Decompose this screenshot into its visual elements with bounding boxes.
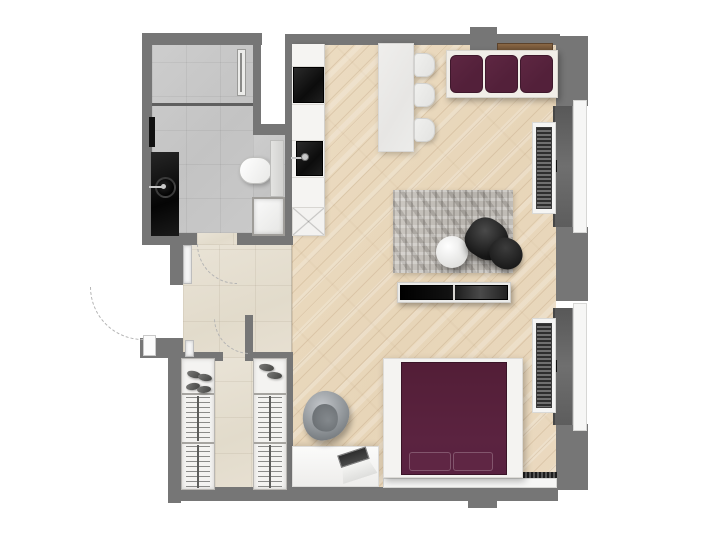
bathroom-mirror [149, 117, 155, 147]
wardrobe-shelf-divider [254, 393, 286, 395]
bottom-ledge [383, 478, 557, 488]
sofa-cushion-2 [485, 55, 518, 93]
tv-sideboard-divider [453, 285, 455, 300]
radiator-lower [536, 323, 552, 408]
right-wall-mid-block [556, 227, 588, 301]
shoe [197, 373, 212, 382]
right-wall-bottom-block [556, 424, 588, 490]
hanging-rail [269, 445, 271, 488]
dining-chair-2 [414, 83, 435, 107]
dishwasher-cabinet [292, 207, 325, 236]
counter-joint [292, 104, 325, 105]
closet-door-swing-arc [214, 318, 250, 354]
toilet-cistern-panel [270, 140, 284, 197]
bottom-wall [168, 487, 558, 501]
tile-wood-transition [291, 236, 293, 356]
basin-faucet-head [161, 184, 166, 189]
entry-door-jamb-lower [185, 340, 194, 357]
kitchen-back-wall [285, 44, 292, 245]
shoe [267, 371, 282, 379]
wardrobe-shelf-divider [182, 442, 214, 444]
bottom-wall-pier [468, 501, 497, 508]
sofa-cushion-3 [520, 55, 553, 93]
counter-joint [292, 177, 325, 178]
cooktop [293, 67, 324, 103]
hanging-rail [197, 445, 199, 488]
closet-west-wall [168, 352, 181, 503]
window-upper-sill [573, 100, 587, 233]
wardrobe-left [181, 358, 215, 490]
wardrobe-shelf-divider [182, 393, 214, 395]
bed-pillow-right [453, 452, 493, 471]
wardrobe-corridor-floor [215, 358, 253, 490]
sofa-cushion-1 [450, 55, 483, 93]
hall-west-wall [170, 245, 183, 285]
dining-chair-3 [414, 118, 435, 142]
top-wall-bathroom [142, 33, 262, 45]
hanging-rail [197, 396, 199, 441]
hanging-rail [269, 396, 271, 441]
wardrobe-shelf-divider [254, 442, 286, 444]
shaft-west-wall [253, 44, 261, 132]
bathroom-door-swing-arc [197, 244, 237, 284]
entry-door-jamb-upper [183, 245, 192, 284]
radiator-upper [536, 127, 552, 209]
shower-drain-slot [240, 53, 242, 92]
wardrobe-right [253, 358, 287, 490]
right-wall-top-block [556, 36, 588, 106]
sink-faucet [301, 153, 309, 161]
coffee-table [436, 236, 468, 268]
bed-pillow-left [409, 452, 451, 471]
toilet-bowl [239, 157, 272, 184]
floor-plan-canvas [0, 0, 728, 534]
entry-door-swing-arc [90, 287, 143, 340]
washing-machine [252, 197, 285, 236]
dining-chair-1 [414, 53, 435, 77]
shoe [259, 363, 275, 372]
window-lower-sill [573, 303, 587, 431]
shower-glass-partition [152, 103, 253, 106]
dining-table [378, 43, 414, 152]
entry-door-leaf [143, 335, 156, 356]
